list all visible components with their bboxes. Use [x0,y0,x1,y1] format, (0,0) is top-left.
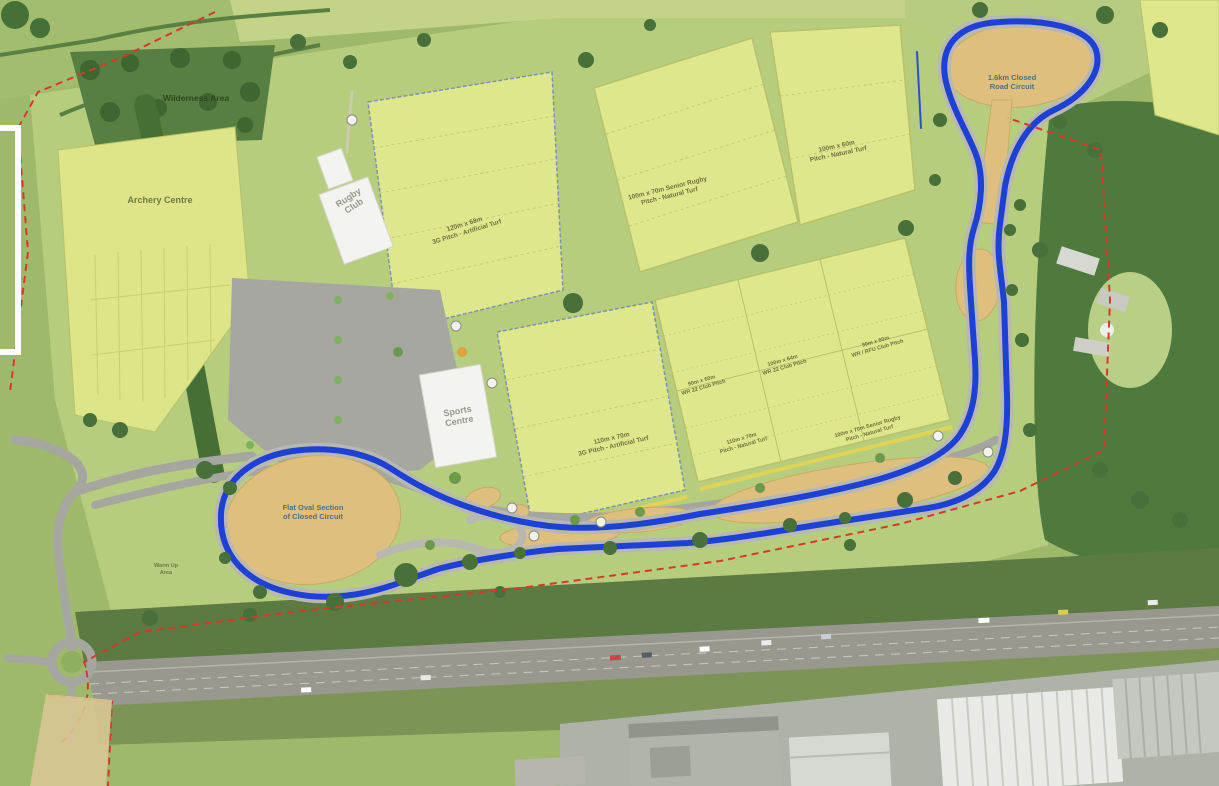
tree [30,18,50,38]
svg-text:Road Circuit: Road Circuit [990,82,1035,91]
tree [1,1,29,29]
flat-oval-label: Flat Oval Section of Closed Circuit [283,503,344,521]
svg-text:Warm Up: Warm Up [154,563,179,569]
warehouse-1 [628,716,781,786]
warehouse-2 [789,732,892,786]
svg-text:Area: Area [160,570,173,576]
autumn-tree [457,347,467,357]
svg-text:of Closed Circuit: of Closed Circuit [283,512,344,521]
wilderness-area-label: Wilderness Area [163,93,229,103]
dome-structure [1100,323,1114,337]
archery-centre-label: Archery Centre [127,195,192,205]
svg-text:1.6km Closed: 1.6km Closed [988,73,1037,82]
warehouse-3 [937,687,1123,786]
svg-text:Flat Oval Section: Flat Oval Section [283,503,344,512]
masterplan-map: Archery Centre Wilderness Area Rugby Clu… [0,0,1219,786]
small-unit [514,756,585,786]
warehouse-4 [1112,671,1219,759]
circuit-label: 1.6km Closed Road Circuit [988,73,1037,91]
